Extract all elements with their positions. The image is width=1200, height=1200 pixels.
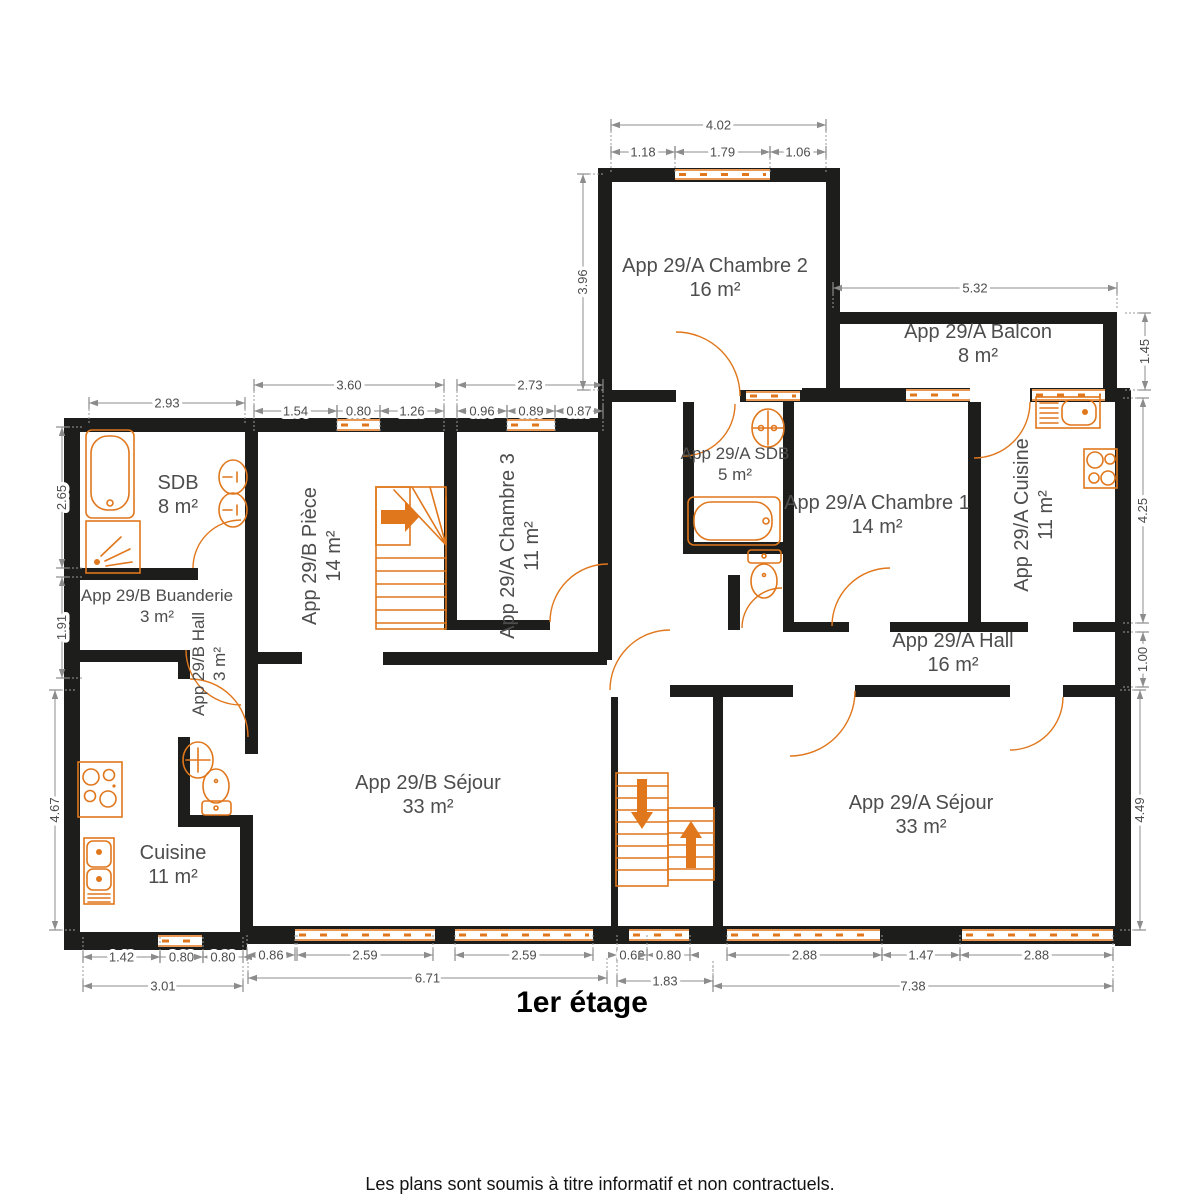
room-label: App 29/A Cuisine11 m²	[1011, 438, 1057, 591]
window-icon	[629, 929, 689, 941]
room-name: App 29/B Séjour	[355, 772, 501, 794]
dimension-label: 4.02	[706, 118, 731, 133]
dimension-label: 1.42	[109, 950, 134, 965]
floor-plan-page: App 29/A Chambre 216 m²App 29/A Balcon8 …	[0, 0, 1200, 1200]
bathtub-icon	[86, 430, 134, 518]
window-icon	[675, 169, 770, 180]
room-area: 14 m²	[851, 516, 902, 538]
dimension-label: 4.49	[1132, 797, 1147, 822]
shower-icon	[86, 521, 140, 573]
wall	[80, 568, 198, 580]
room-name: Cuisine	[140, 842, 207, 864]
dimension-label: 1.45	[1137, 339, 1152, 364]
toilet-icon	[748, 550, 781, 598]
bathtub-icon	[688, 497, 780, 545]
wall	[1103, 312, 1117, 392]
window-icon	[455, 929, 593, 941]
wall	[611, 697, 618, 932]
room-area: 8 m²	[958, 345, 998, 367]
dimension-label: 6.71	[415, 971, 440, 986]
room-name: App 29/A Balcon	[904, 321, 1052, 343]
room-name: SDB	[157, 472, 198, 494]
door-arc-icon	[742, 588, 782, 628]
dimension-label: 0.80	[656, 948, 681, 963]
room-area: 11 m²	[148, 866, 198, 888]
dimension-label: 1.18	[630, 145, 655, 160]
footer-note: Les plans sont soumis à titre informatif…	[365, 1174, 834, 1195]
window-icon	[295, 929, 435, 941]
dimension-label: 1.06	[785, 145, 810, 160]
dimension: 1.06	[770, 145, 826, 173]
window-icon	[337, 419, 380, 431]
dimension: 1.83	[617, 961, 713, 989]
stove-icon	[78, 762, 122, 817]
washbasin-icon	[219, 460, 247, 527]
room-name: App 29/A Séjour	[849, 792, 994, 814]
dimension: 1.18	[611, 145, 675, 173]
room-label: Cuisine11 m²	[140, 842, 207, 888]
window-icon	[906, 389, 970, 401]
room-label: App 29/A Séjour33 m²	[849, 792, 994, 838]
room-name: App 29/A Hall	[892, 630, 1013, 652]
room-name: App 29/A SDB	[681, 444, 790, 463]
room-label: App 29/A Chambre 114 m²	[784, 492, 970, 538]
wall	[612, 390, 676, 402]
room-name: App 29/B Buanderie	[81, 586, 233, 605]
room-label: App 29/B Séjour33 m²	[355, 772, 501, 818]
window-icon	[962, 929, 1113, 941]
stove-icon	[1084, 449, 1117, 488]
dimension-label: 1.79	[710, 145, 735, 160]
room-name: App 29/B Hall	[189, 612, 208, 716]
room-label: App 29/A Balcon8 m²	[904, 321, 1052, 367]
room-label: App 29/B Hall3 m²	[189, 612, 229, 716]
dimension: 3.60	[254, 378, 444, 406]
wall	[64, 932, 247, 950]
wall	[670, 685, 793, 697]
wall	[258, 652, 302, 664]
wall	[968, 402, 981, 632]
wall	[783, 622, 849, 632]
room-name: App 29/A Chambre 2	[622, 255, 808, 277]
dimension-label: 0.96	[469, 404, 494, 419]
room-area: 8 m²	[158, 496, 198, 518]
dimension: 3.01	[83, 966, 243, 994]
room-label: App 29/A Chambre 216 m²	[622, 255, 808, 301]
dimension-label: 2.93	[154, 396, 179, 411]
dimension-label: 3.01	[150, 979, 175, 994]
toilet-icon	[202, 769, 231, 815]
room-label: App 29/A SDB5 m²	[681, 444, 790, 484]
door-arc-icon	[790, 691, 855, 756]
dimension-label: 3.96	[575, 269, 590, 294]
room-label: SDB8 m²	[157, 472, 198, 518]
window-icon	[507, 419, 555, 431]
room-label: App 29/B Pièce14 m²	[299, 487, 345, 625]
room-area: 16 m²	[689, 279, 740, 301]
wall	[728, 575, 740, 630]
dimension: 4.02	[611, 118, 826, 146]
dimension-label: 7.38	[900, 979, 925, 994]
page-title: 1er étage	[516, 986, 648, 1020]
window-icon	[727, 929, 880, 941]
stairs-icon	[376, 487, 446, 629]
room-area: 11 m²	[1035, 490, 1057, 540]
room-area: 33 m²	[895, 816, 946, 838]
wall	[1063, 685, 1115, 697]
wall	[802, 388, 906, 402]
dimension: 6.71	[248, 958, 607, 986]
room-label: App 29/A Hall16 m²	[892, 630, 1013, 676]
dimension: 1.45	[1125, 313, 1152, 390]
window-icon	[1032, 389, 1105, 401]
door-arc-icon	[676, 332, 740, 396]
dimension-label: 4.67	[47, 797, 62, 822]
room-area: 5 m²	[718, 465, 752, 484]
room-name: App 29/A Chambre 3	[497, 453, 519, 639]
wall	[178, 737, 190, 822]
dimension-label: 0.86	[258, 948, 283, 963]
dimension-label: 2.59	[511, 948, 536, 963]
room-label: App 29/B Buanderie3 m²	[81, 586, 233, 626]
dimension: 1.79	[675, 145, 770, 173]
room-area: 3 m²	[140, 607, 174, 626]
room-area: 3 m²	[210, 647, 229, 681]
wall	[683, 542, 783, 554]
floor-plan: App 29/A Chambre 216 m²App 29/A Balcon8 …	[0, 0, 1200, 1200]
dimension-label: 1.47	[908, 948, 933, 963]
dimension-label: 5.32	[962, 281, 987, 296]
room-name: App 29/A Cuisine	[1011, 438, 1033, 591]
window-icon	[158, 935, 202, 947]
dimension-label: 2.88	[792, 948, 817, 963]
dimension-label: 0.80	[210, 950, 235, 965]
room-name: App 29/A Chambre 1	[784, 492, 970, 514]
dimension-label: 0.80	[346, 404, 371, 419]
stairs-icon	[616, 773, 714, 886]
dimension-label: 1.00	[1135, 647, 1150, 672]
dimension-label: 2.73	[517, 378, 542, 393]
dimension-label: 2.65	[54, 485, 69, 510]
wall	[855, 685, 1010, 697]
kitchen-sink-icon	[84, 838, 114, 904]
wall	[80, 650, 180, 662]
door-arc-icon	[610, 630, 670, 690]
room-area: 14 m²	[323, 530, 345, 581]
wall	[783, 402, 794, 632]
wall	[240, 815, 253, 932]
dimension-label: 1.26	[399, 404, 424, 419]
dimension-label: 1.91	[54, 615, 69, 640]
dimension-label: 0.89	[518, 404, 543, 419]
room-area: 11 m²	[521, 521, 543, 571]
dimension-label: 2.59	[352, 948, 377, 963]
room-label: App 29/A Chambre 311 m²	[497, 453, 543, 639]
room-area: 16 m²	[927, 654, 978, 676]
dimension-label: 0.80	[169, 950, 194, 965]
wall	[178, 815, 240, 827]
wall	[598, 182, 612, 660]
washbasin-icon	[752, 409, 784, 447]
window-icon	[746, 391, 800, 401]
dimension-label: 1.54	[283, 404, 308, 419]
dimension-label: 3.60	[336, 378, 361, 393]
door-arc-icon	[832, 568, 890, 626]
room-area: 33 m²	[402, 796, 453, 818]
wall	[383, 652, 607, 665]
dimension: 5.32	[833, 281, 1117, 309]
dimension-label: 0.87	[566, 404, 591, 419]
dimension: 7.38	[713, 966, 1113, 994]
dimension-label: 4.25	[1135, 498, 1150, 523]
room-name: App 29/B Pièce	[299, 487, 321, 625]
wall	[245, 418, 258, 568]
dimension-label: 1.83	[652, 974, 677, 989]
dimension-label: 2.88	[1024, 948, 1049, 963]
door-arc-icon	[1010, 697, 1063, 750]
